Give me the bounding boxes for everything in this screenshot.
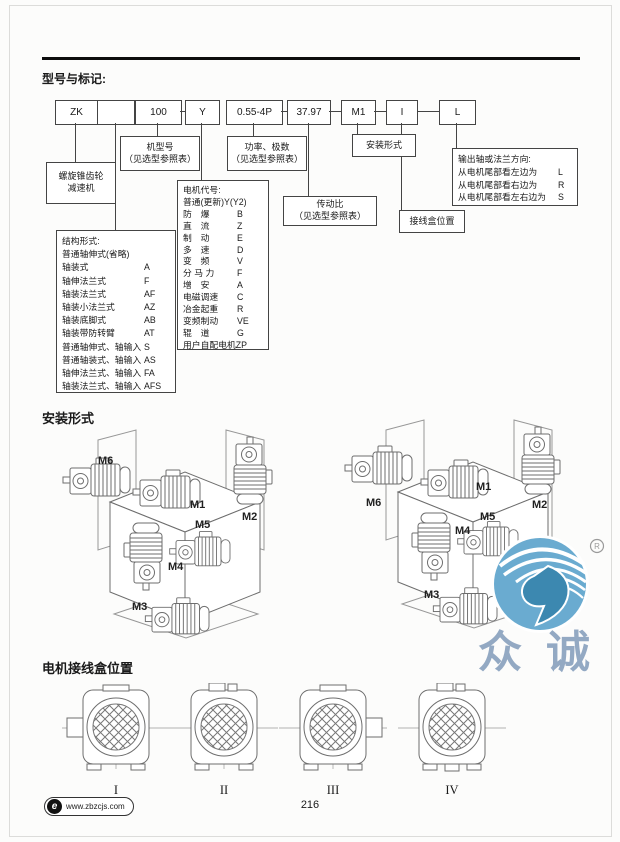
junction-box-top (456, 684, 465, 691)
junction-box-right (366, 718, 382, 737)
junction-box-top (209, 683, 225, 691)
label-m4: M4 (168, 561, 184, 573)
code-box-y: Y (185, 100, 220, 125)
label-m3: M3 (424, 589, 439, 601)
connector-line (281, 111, 287, 112)
motor-view-3: III (277, 683, 389, 798)
svg-text:R: R (594, 542, 600, 551)
junction-box-top (228, 684, 237, 691)
top-rule (42, 57, 580, 60)
label-power: 功率、极数 （见选型参照表） (227, 136, 307, 171)
junction-box-left (67, 718, 83, 737)
section-title-model: 型号与标记: (42, 70, 106, 87)
connector-line (374, 111, 386, 112)
watermark-text: 众诚 (478, 616, 614, 680)
position-label: IV (396, 783, 508, 798)
label-m2: M2 (532, 499, 547, 511)
label-model: 机型号 （见选型参照表） (120, 136, 200, 171)
gearmotor-m2 (522, 427, 560, 494)
connector-line (75, 123, 76, 162)
catalog-page: 型号与标记: ZK 100 Y 0.55-4P 37.97 M1 I L 螺旋锥… (0, 0, 620, 842)
code-box-l: L (439, 100, 476, 125)
label-m2: M2 (242, 511, 257, 523)
label-structure-form: 结构形式: 普通轴伸式(省略) 轴装式A 轴伸法兰式F 轴装法兰式AF 轴装小法… (56, 230, 176, 393)
connector-line (417, 111, 439, 112)
junction-box-top (437, 683, 453, 691)
section-title-installation: 安装形式 (42, 408, 94, 427)
installation-diagram-left: M6 M1 M2 M4 M5 M3 (40, 428, 320, 660)
connector-line (180, 111, 185, 112)
motor-view-4: IV (396, 683, 508, 798)
motor-rear-view (168, 683, 280, 775)
connector-line (308, 123, 309, 196)
label-m3: M3 (132, 601, 147, 613)
motor-rear-view (277, 683, 389, 775)
connector-line (201, 123, 202, 180)
code-box-100: 100 (135, 100, 182, 125)
label-m5: M5 (195, 519, 210, 531)
page-number: 216 (0, 799, 620, 811)
connector-line (157, 123, 158, 136)
connector-line (253, 123, 254, 136)
label-m4: M4 (455, 525, 471, 537)
code-box-ratio: 37.97 (287, 100, 331, 125)
position-label: II (168, 783, 280, 798)
position-label: III (277, 783, 389, 798)
label-ratio: 传动比 （见选型参照表） (283, 196, 377, 226)
label-motor-code: 电机代号: 普通(更新)Y(Y2) 防 爆B 直 流Z 制 动E 多 速D 变 … (177, 180, 269, 350)
connector-line (456, 123, 457, 148)
code-box-blank (97, 100, 135, 125)
label-reducer: 螺旋锥齿轮 减速机 (46, 162, 116, 204)
position-label: I (60, 783, 172, 798)
label-m1: M1 (190, 499, 205, 511)
label-mounting: 安装形式 (352, 134, 416, 157)
code-box-i: I (386, 100, 418, 125)
label-m6: M6 (98, 455, 113, 467)
label-m5: M5 (480, 511, 495, 523)
connector-line (329, 111, 341, 112)
motor-view-1: I (60, 683, 172, 798)
motor-rear-view (60, 683, 172, 775)
label-terminal-pos: 接线盒位置 (399, 210, 465, 233)
motor-view-2: II (168, 683, 280, 798)
gearmotor-m6 (63, 458, 130, 496)
label-m6: M6 (366, 497, 381, 509)
gearmotor-m2 (234, 437, 272, 504)
gearmotor-m6 (345, 446, 412, 484)
label-m1: M1 (476, 481, 491, 493)
code-box-m1: M1 (341, 100, 376, 125)
code-box-power: 0.55-4P (226, 100, 283, 125)
label-output-direction: 输出轴或法兰方向: 从电机尾部看左边为L 从电机尾部看右边为R 从电机尾部看左右… (452, 148, 578, 206)
section-title-terminal-box: 电机接线盒位置 (42, 658, 133, 677)
motor-rear-view (396, 683, 508, 775)
code-box-zk: ZK (55, 100, 98, 125)
